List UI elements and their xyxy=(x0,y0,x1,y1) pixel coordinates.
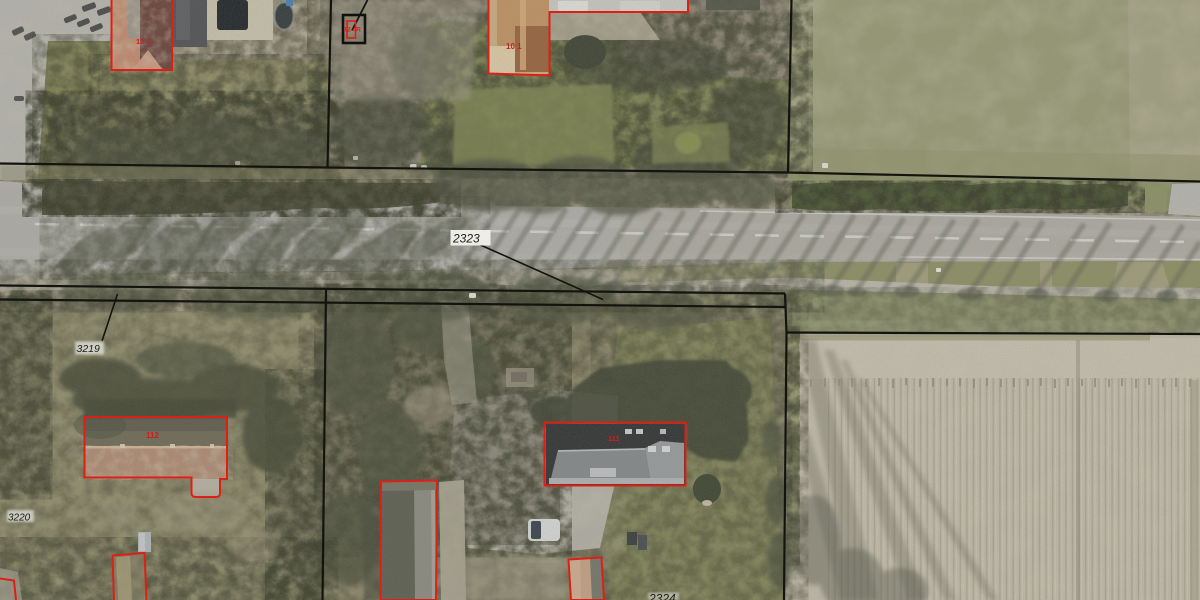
svg-text:2323: 2323 xyxy=(452,232,480,246)
svg-text:10 1: 10 1 xyxy=(506,42,522,51)
svg-text:2324: 2324 xyxy=(648,592,676,600)
svg-text:3219: 3219 xyxy=(77,343,101,355)
svg-text:111: 111 xyxy=(608,434,620,443)
svg-text:3220: 3220 xyxy=(8,513,31,524)
svg-text:112: 112 xyxy=(146,431,159,440)
svg-text:10 2: 10 2 xyxy=(136,37,151,46)
svg-text:12 4R: 12 4R xyxy=(344,27,362,34)
